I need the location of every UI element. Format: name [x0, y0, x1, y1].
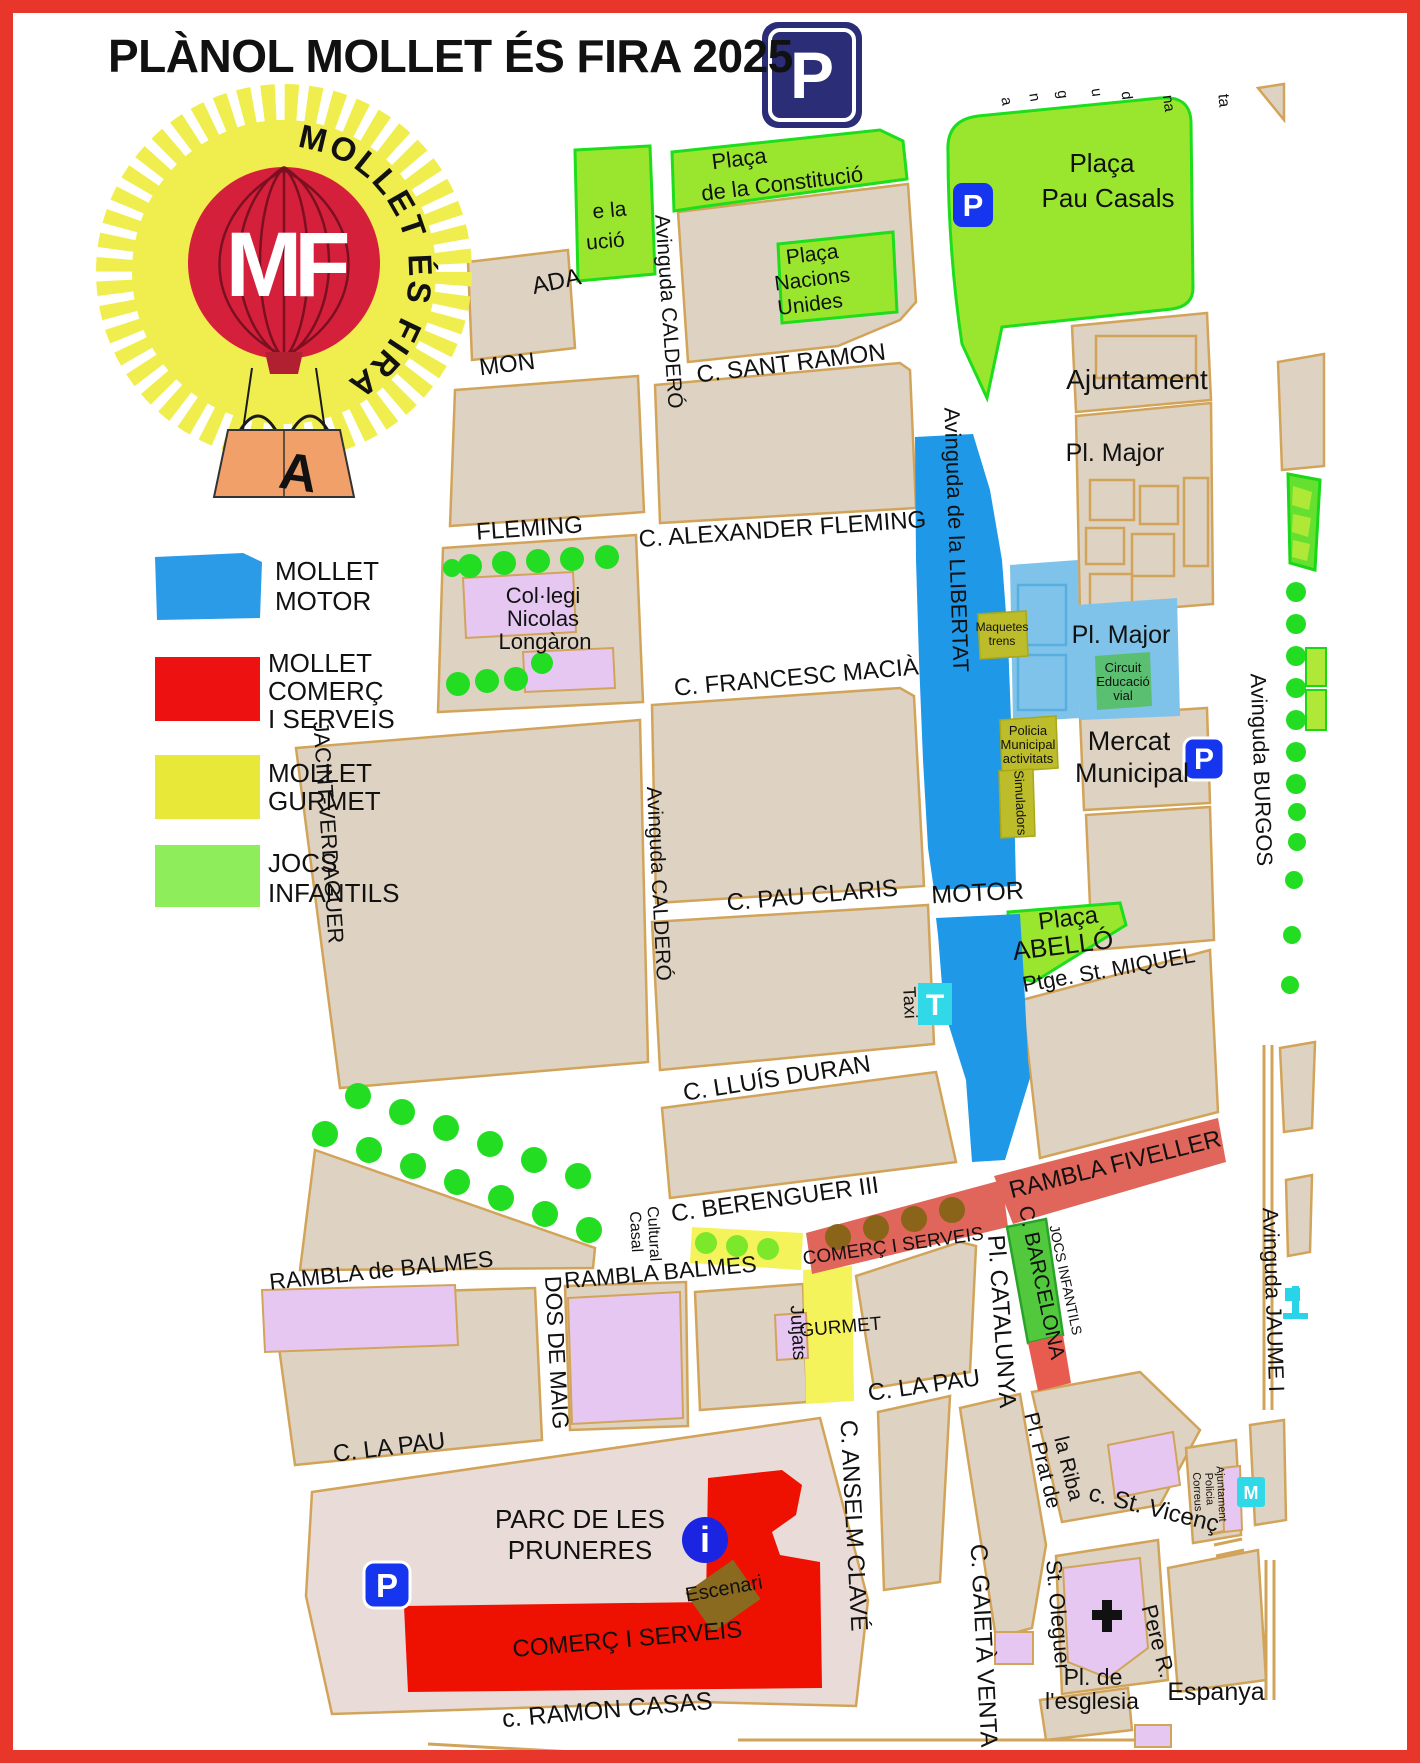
street-label-partial: n [1025, 92, 1043, 103]
place-label-pau-casals-2: Pau Casals [1042, 183, 1175, 213]
place-label-maquetes-2: trens [989, 634, 1016, 648]
parking-icon-parc: P [364, 1562, 410, 1608]
correus-icon: M [1237, 1477, 1265, 1507]
balloon-neck [265, 352, 303, 374]
building [262, 1285, 458, 1352]
place-label-casal-1: Casal [626, 1211, 645, 1253]
hedge [1306, 648, 1326, 686]
building [1135, 1725, 1171, 1747]
place-label-partial: e la [592, 198, 628, 224]
legend-swatch-motor [155, 553, 262, 620]
street-label-partial: a [997, 96, 1015, 108]
legend-label: JOCS [268, 848, 337, 878]
hedge [1306, 690, 1326, 730]
city-block [652, 688, 924, 903]
city-block [450, 376, 644, 526]
legend-swatch-comerc [155, 657, 260, 721]
legend-label: INFANTILS [268, 878, 399, 908]
city-block [1286, 1175, 1312, 1256]
parking-letter: P [1194, 743, 1214, 776]
place-label-policia-3: activitats [1003, 751, 1054, 766]
legend-label: GURMET [268, 786, 381, 816]
place-label-circuit-1: Circuit [1105, 660, 1142, 675]
place-label-pl-major-2: Pl. Major [1072, 621, 1171, 649]
city-block [652, 905, 934, 1070]
city-block [1280, 1042, 1315, 1132]
street-label-partial: MON [478, 348, 537, 382]
ajuntament-block [1072, 313, 1211, 412]
correus-letter: M [1244, 1483, 1259, 1503]
taxi-icon: T [918, 983, 952, 1025]
page-title: PLÀNOL MOLLET ÉS FIRA 2025 [108, 30, 793, 82]
place-label-esglesia-2: l'esglesia [1045, 1688, 1139, 1714]
parking-letter: P [790, 38, 834, 112]
legend-label: MOTOR [275, 586, 371, 616]
place-label-maquetes-1: Maquetes [976, 620, 1029, 634]
zone-label-motor: MOTOR [931, 877, 1025, 910]
city-block [1278, 354, 1324, 470]
place-label-collegi-2: Nicolas [507, 606, 579, 631]
city-block [878, 1396, 950, 1590]
info-icon: i [682, 1517, 728, 1563]
info-letter: i [700, 1519, 710, 1560]
place-label-apc-3: Correus [1190, 1472, 1204, 1512]
bag-letter: A [276, 442, 321, 505]
place-label-esglesia-1: Pl. de [1064, 1664, 1123, 1690]
city-block [1250, 1420, 1286, 1525]
legend-label: MOLLET [275, 556, 379, 586]
place-label-collegi-3: Longàron [499, 629, 592, 654]
place-label-pau-casals-1: Plaça [1069, 148, 1135, 178]
place-label-pl-major: Pl. Major [1066, 439, 1165, 467]
place-label-policia-1: Policia [1009, 723, 1048, 738]
mollet-es-fira-logo: MOLLET ÉS FIRA MF A [116, 104, 452, 504]
place-label-mercat-2: Municipal [1075, 758, 1189, 788]
street-label-partial: na [1159, 94, 1178, 114]
place-label-circuit-2: Educació [1096, 674, 1149, 689]
legend-swatch-gurmet [155, 755, 260, 819]
place-label-parc-2: PRUNERES [508, 1535, 652, 1565]
poster-page: P P P P i T M MON ADA FLEMING e la ució … [0, 0, 1420, 1763]
taxi-letter: T [926, 989, 944, 1022]
street-label-partial: u [1087, 87, 1105, 98]
street-label-espanya: Espanya [1167, 1678, 1264, 1706]
place-label-policia-2: Municipal [1001, 737, 1056, 752]
parking-icon-mercat: P [1184, 738, 1224, 780]
building [568, 1292, 683, 1424]
taxi-label: Taxi [899, 986, 921, 1019]
street-label-burgos: Avinguda BURGOS [1246, 673, 1278, 867]
pl-major-block [1076, 403, 1213, 615]
place-label-circuit-3: vial [1113, 688, 1133, 703]
parking-letter: P [963, 188, 984, 223]
logo-monogram: MF [226, 214, 348, 316]
parking-icon-pau-casals: P [953, 183, 993, 227]
place-label-parc-1: PARC DE LES [495, 1504, 665, 1534]
place-label-partial: ució [585, 228, 625, 254]
legend-label: MOLLET [268, 648, 372, 678]
place-label-mercat-1: Mercat [1088, 726, 1171, 756]
city-block [1168, 1550, 1266, 1692]
street-label-partial: g [1053, 89, 1071, 100]
place-label-casal-2: Cultural [644, 1206, 664, 1262]
place-label-collegi-1: Col·legi [506, 583, 581, 608]
building [995, 1632, 1033, 1664]
street-label-partial: ta [1214, 93, 1232, 108]
city-block [655, 363, 916, 523]
legend-label: COMERÇ [268, 676, 384, 706]
parking-letter: P [376, 1567, 398, 1604]
city-block [1258, 84, 1284, 120]
street-label-partial: d [1118, 90, 1136, 100]
legend-swatch-jocs [155, 845, 260, 907]
legend-label: I SERVEIS [268, 704, 395, 734]
place-label-ajuntament: Ajuntament [1066, 364, 1208, 395]
legend-label: MOLLET [268, 758, 372, 788]
